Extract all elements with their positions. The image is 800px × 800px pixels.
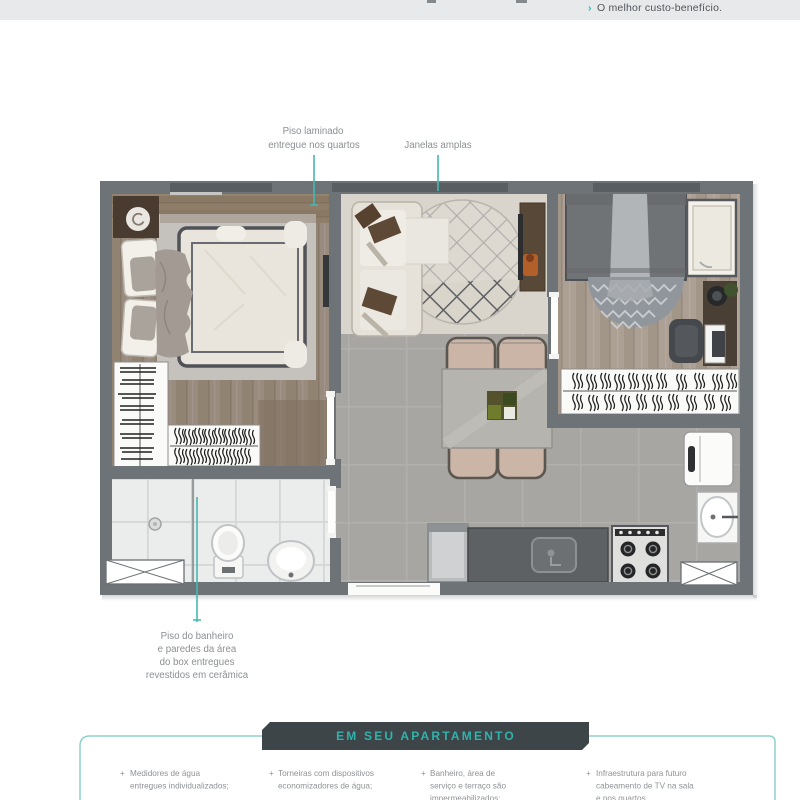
svg-text:Piso laminado: Piso laminado [283,126,344,137]
svg-text:Medidores de água: Medidores de água [130,769,201,778]
svg-text:Banheiro, área de: Banheiro, área de [430,769,496,778]
svg-text:EM SEU APARTAMENTO: EM SEU APARTAMENTO [336,729,516,743]
svg-text:Janelas amplas: Janelas amplas [404,140,471,151]
svg-text:Infraestrutura para futuro: Infraestrutura para futuro [596,769,687,778]
svg-text:+: + [421,769,426,778]
svg-text:Piso do banheiro: Piso do banheiro [161,631,234,642]
svg-text:serviço e terraço são: serviço e terraço são [430,782,506,791]
svg-text:›: › [588,2,592,14]
svg-text:e paredes da área: e paredes da área [158,644,237,655]
svg-text:Torneiras com dispositivos: Torneiras com dispositivos [278,769,374,778]
svg-text:economizadores de água;: economizadores de água; [278,782,372,791]
svg-text:entregues individualizados;: entregues individualizados; [130,782,229,791]
svg-text:cabeamento de TV na sala: cabeamento de TV na sala [596,782,694,791]
svg-text:+: + [269,769,274,778]
svg-text:+: + [586,769,591,778]
svg-text:e nos quartos.: e nos quartos. [596,794,648,800]
svg-text:O melhor custo-benefício.: O melhor custo-benefício. [597,2,722,14]
svg-text:impermeabilizados;: impermeabilizados; [430,794,501,800]
svg-text:do box entregues: do box entregues [160,657,235,668]
svg-text:+: + [120,769,125,778]
svg-text:entregue nos quartos: entregue nos quartos [268,140,360,151]
svg-text:revestidos em cerâmica: revestidos em cerâmica [146,670,249,681]
